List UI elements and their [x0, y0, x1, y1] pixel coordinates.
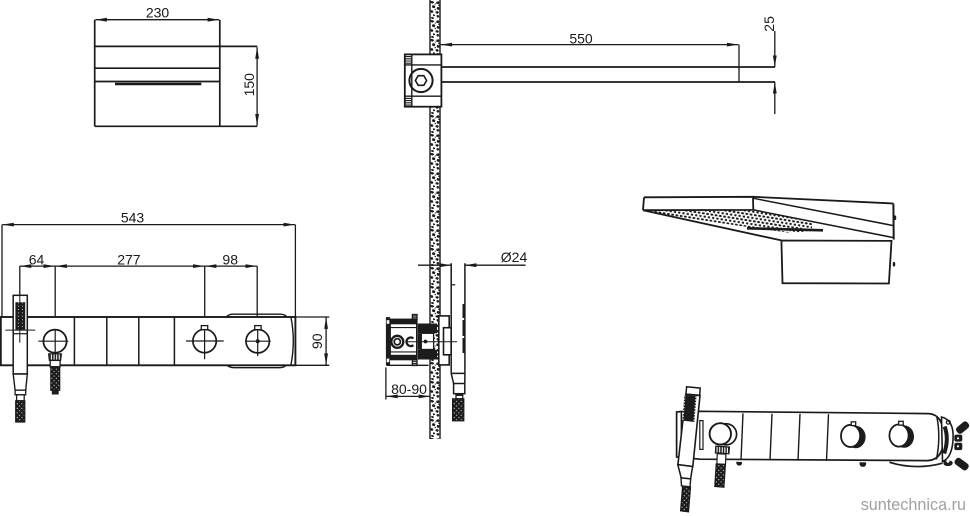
svg-text:150: 150 [241, 73, 257, 97]
svg-text:98: 98 [222, 252, 238, 268]
svg-text:64: 64 [29, 252, 45, 268]
svg-text:suntechnica.ru: suntechnica.ru [861, 496, 966, 514]
svg-text:25: 25 [761, 16, 777, 32]
svg-text:80-90: 80-90 [391, 381, 427, 397]
svg-text:230: 230 [146, 5, 170, 21]
svg-text:Ø24: Ø24 [501, 249, 528, 265]
svg-text:277: 277 [117, 252, 141, 268]
svg-text:90: 90 [309, 333, 325, 349]
svg-text:550: 550 [569, 30, 593, 46]
svg-text:543: 543 [121, 210, 145, 226]
